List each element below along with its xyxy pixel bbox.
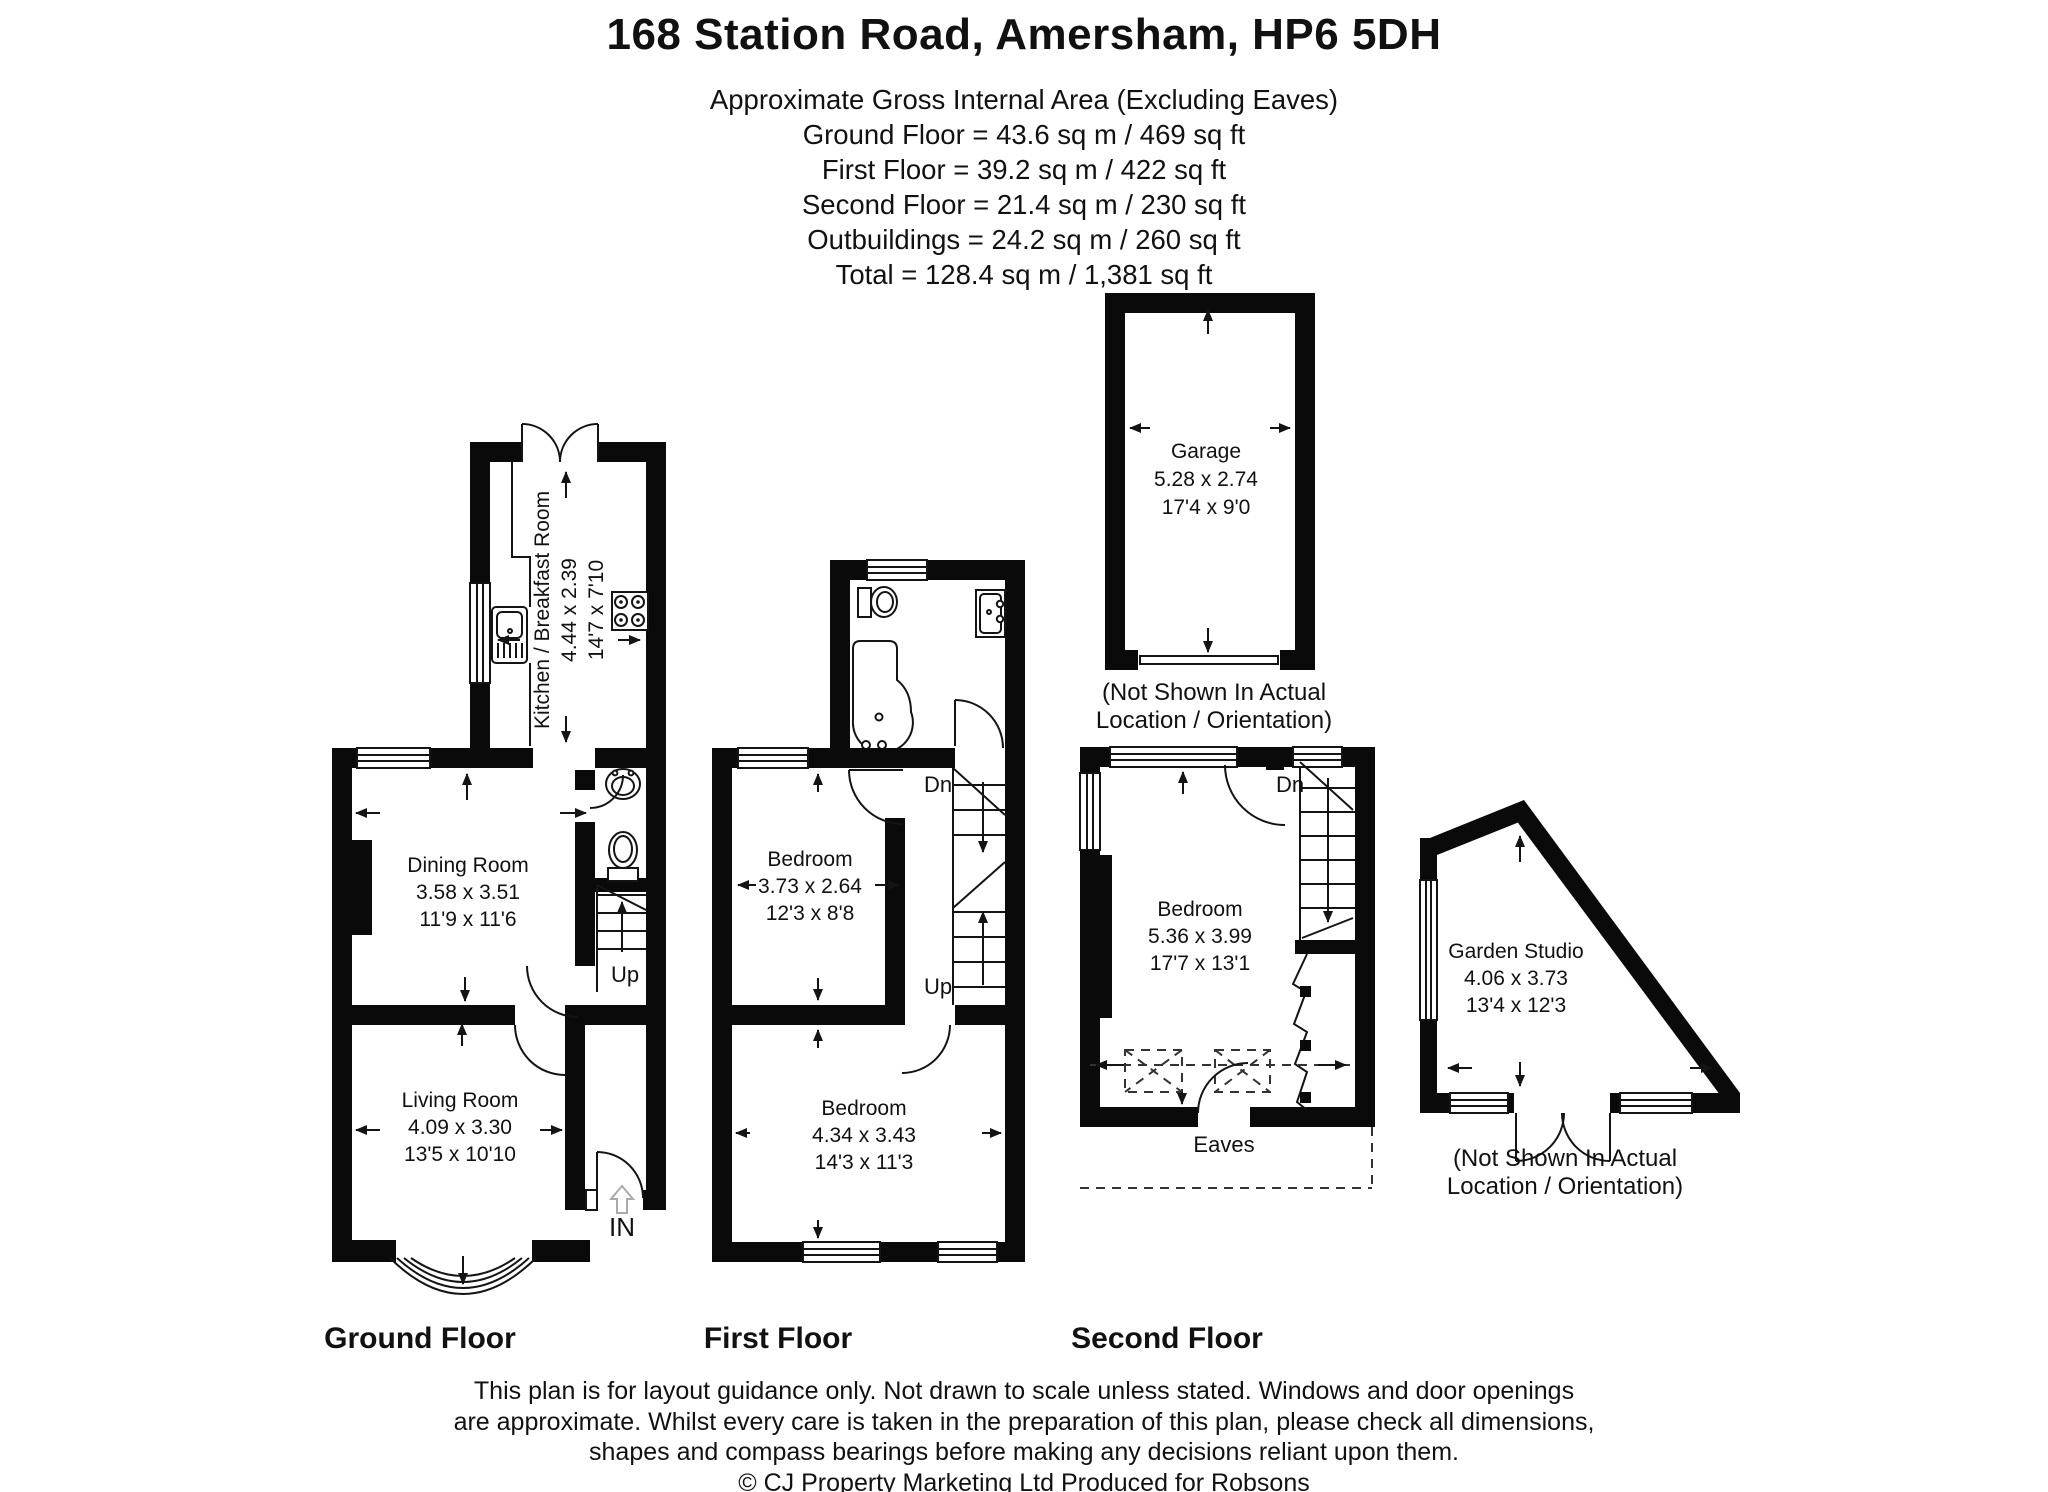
front-door — [597, 1152, 643, 1200]
studio-front-window-right — [1620, 1093, 1692, 1113]
eaves-zigzag-wall — [1293, 954, 1311, 1110]
back-bedroom-door — [849, 770, 903, 824]
wc-basin-icon — [606, 769, 640, 799]
entrance-arrow-icon — [611, 1186, 633, 1213]
back-bedroom-label: Bedroom — [767, 848, 852, 871]
bathroom-toilet-icon — [858, 587, 897, 617]
second-floor-window-left — [1110, 747, 1237, 767]
bathroom-window — [867, 560, 927, 580]
garage-metric: 5.28 x 2.74 — [1154, 468, 1258, 491]
studio-imperial: 13'4 x 12'3 — [1466, 994, 1566, 1017]
second-floor-plan: Dn Bedroom 5.36 x 3.99 17'7 x 13'1 — [1071, 747, 1375, 1355]
second-bedroom-metric: 5.36 x 3.99 — [1148, 925, 1252, 948]
kitchen-window — [470, 583, 490, 683]
disclaimer-line1: This plan is for layout guidance only. N… — [0, 1376, 2048, 1407]
living-label: Living Room — [402, 1089, 519, 1112]
back-bedroom-imperial: 12'3 x 8'8 — [766, 902, 855, 925]
kitchen-label: Kitchen / Breakfast Room 4.44 x 2.39 14'… — [531, 491, 608, 729]
first-dn-label: Dn — [924, 772, 952, 797]
ground-up-label: Up — [611, 962, 639, 987]
first-floor-plan: Bedroom 3.73 x 2.64 12'3 x 8'8 — [704, 560, 1025, 1355]
garage-note-line2: Location / Orientation) — [1096, 707, 1332, 734]
studio-label: Garden Studio — [1448, 940, 1583, 963]
second-floor-stairs — [1300, 762, 1355, 940]
dining-metric: 3.58 x 3.51 — [416, 881, 520, 904]
kitchen-double-door — [522, 424, 598, 462]
front-bedroom-label: Bedroom — [821, 1097, 906, 1120]
second-floor-side-window — [1080, 773, 1100, 850]
garage-imperial: 17'4 x 9'0 — [1162, 496, 1251, 519]
svg-text:14'7 x 7'10: 14'7 x 7'10 — [585, 560, 608, 660]
front-bedroom-window-right — [938, 1242, 997, 1262]
hob-icon — [612, 592, 648, 630]
svg-text:Kitchen / Breakfast Room: Kitchen / Breakfast Room — [531, 491, 554, 729]
front-bedroom-metric: 4.34 x 3.43 — [812, 1124, 916, 1147]
second-bedroom-label: Bedroom — [1157, 898, 1242, 921]
disclaimer: This plan is for layout guidance only. N… — [0, 1376, 2048, 1492]
living-metric: 4.09 x 3.30 — [408, 1116, 512, 1139]
kitchen-counter — [512, 462, 530, 746]
studio-note-line2: Location / Orientation) — [1447, 1173, 1683, 1200]
first-up-label: Up — [924, 974, 952, 999]
copyright: © CJ Property Marketing Ltd Produced for… — [0, 1468, 2048, 1492]
bathroom-door — [955, 700, 1003, 748]
disclaimer-line2: are approximate. Whilst every care is ta… — [0, 1407, 2048, 1438]
floorplan-page: 168 Station Road, Amersham, HP6 5DH Appr… — [0, 0, 2048, 1492]
back-bedroom-window — [738, 748, 808, 768]
garden-studio-plan: Garden Studio 4.06 x 3.73 13'4 x 12'3 (N… — [1420, 800, 1740, 1200]
eaves-label: Eaves — [1193, 1132, 1254, 1157]
dining-imperial: 11'9 x 11'6 — [419, 908, 516, 931]
studio-metric: 4.06 x 3.73 — [1464, 967, 1568, 990]
floor-plan-svg: Kitchen / Breakfast Room 4.44 x 2.39 14'… — [0, 0, 2048, 1492]
garage-label: Garage — [1171, 440, 1241, 463]
first-floor-heading: First Floor — [704, 1322, 853, 1355]
living-imperial: 13'5 x 10'10 — [404, 1143, 516, 1166]
back-bedroom-metric: 3.73 x 2.64 — [758, 875, 862, 898]
second-floor-window-right — [1293, 747, 1342, 767]
bay-window — [332, 1240, 590, 1294]
garage-door — [1140, 656, 1278, 664]
wc-toilet-icon — [608, 832, 638, 881]
living-door-arc — [515, 1025, 565, 1075]
second-bedroom-imperial: 17'7 x 13'1 — [1150, 952, 1250, 975]
bathroom-basin-icon — [976, 590, 1005, 637]
front-bedroom-door-arc — [902, 1025, 950, 1073]
second-dn-label: Dn — [1276, 772, 1304, 797]
dining-window — [357, 748, 430, 768]
disclaimer-line3: shapes and compass bearings before makin… — [0, 1437, 2048, 1468]
first-floor-stairs — [953, 768, 1005, 1005]
studio-side-window — [1420, 880, 1437, 1020]
garage-note-line1: (Not Shown In Actual — [1102, 679, 1326, 706]
second-floor-heading: Second Floor — [1071, 1322, 1263, 1355]
front-bedroom-window-left — [803, 1242, 880, 1262]
studio-front-window-left — [1450, 1093, 1508, 1113]
entrance-sidelight-window — [586, 1190, 597, 1210]
svg-text:4.44 x 2.39: 4.44 x 2.39 — [558, 558, 581, 662]
front-bedroom-imperial: 14'3 x 11'3 — [815, 1151, 914, 1174]
garage-plan: Garage 5.28 x 2.74 17'4 x 9'0 (Not Shown… — [1096, 293, 1332, 734]
dining-label: Dining Room — [407, 854, 528, 877]
ground-floor-plan: Kitchen / Breakfast Room 4.44 x 2.39 14'… — [324, 424, 666, 1355]
entrance-label: IN — [609, 1212, 635, 1242]
bath-icon — [853, 641, 913, 752]
kitchen-sink — [492, 607, 527, 663]
studio-note-line1: (Not Shown In Actual — [1453, 1145, 1677, 1172]
ground-floor-heading: Ground Floor — [324, 1322, 516, 1355]
